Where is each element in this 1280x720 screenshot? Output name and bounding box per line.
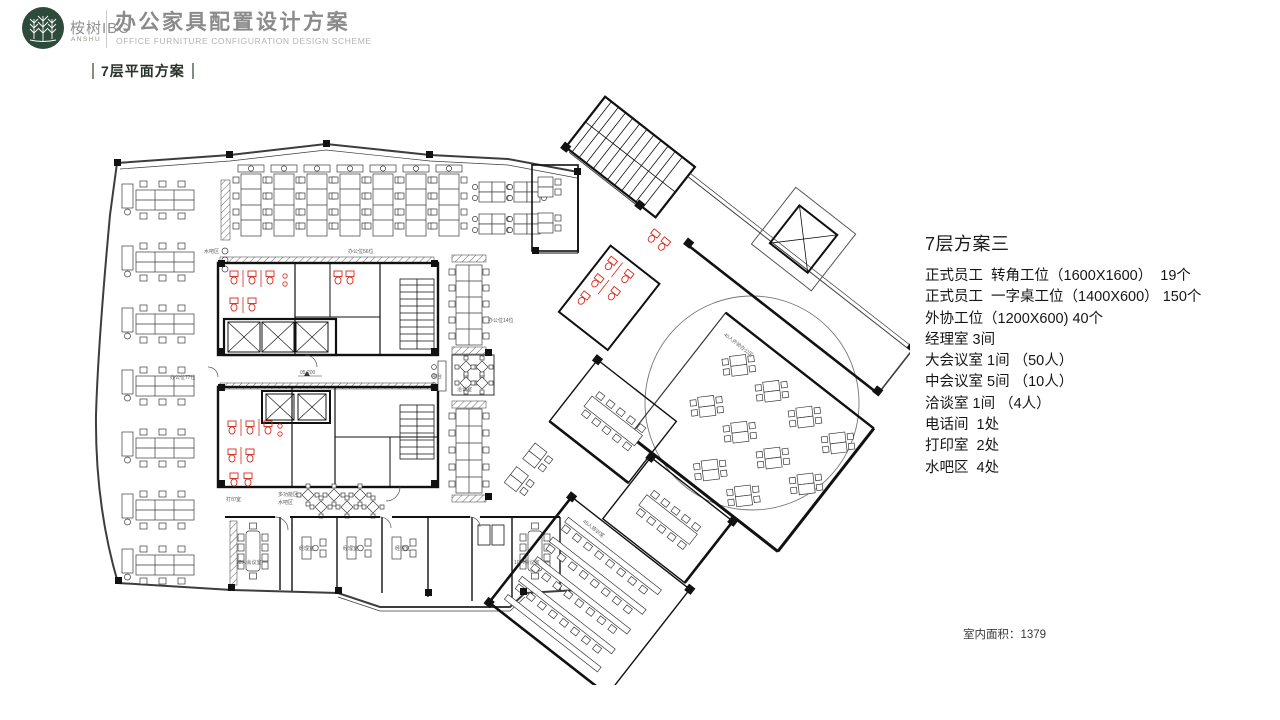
section-label: 7层平面方案 [92,61,194,81]
spec-item: 经理室 3间 [925,330,1255,351]
spec-item: 水吧区 4处 [925,458,1255,479]
plan-label: 水吧区 [204,248,219,255]
plan-label: 05.200 [300,370,316,376]
logo-text-en: ANSHU [71,36,101,43]
top-bench-field [233,165,467,236]
spec-item: 洽谈室 1间 （4人） [925,394,1255,415]
top-quad-clusters [472,182,546,234]
plan-label: 办公位56位 [348,248,374,255]
spec-list: 正式员工 转角工位（1600X1600） 19个正式员工 一字桌工位（1400X… [925,266,1255,479]
plan-label: 10人会议室 [236,559,262,566]
spec-panel: 7层方案三 正式员工 转角工位（1600X1600） 19个正式员工 一字桌工位… [925,230,1255,479]
section-label-text: 7层平面方案 [101,61,185,81]
spec-item: 打印室 2处 [925,436,1255,457]
plan-label: 打印室 [226,496,241,503]
plan-label: 水吧区 [278,499,293,506]
spec-item: 中会议室 5间 （10人） [925,372,1255,393]
plan-label: 10人会议室 [514,559,540,566]
restroom-upper [230,270,354,313]
company-logo [22,7,64,49]
floor-plan-svg: 40人外协办公区45人培训室 水吧区办公位56位办公位77位办公位14位05.2… [80,85,910,685]
plan-label: 40人外协办公区 [722,331,754,358]
page: { "header": { "logo_zh": "桉树IBC", "logo_… [0,0,1280,720]
core-lower [218,387,438,487]
plan-label: 吧台 [432,373,442,380]
spec-title: 7层方案三 [925,230,1255,256]
wing-small-desks [504,443,554,497]
spec-item: 外协工位（1200X600) 40个 [925,309,1255,330]
spec-item: 正式员工 转角工位（1600X1600） 19个 [925,266,1255,287]
floor-plan: 40人外协办公区45人培训室 水吧区办公位56位办公位77位办公位14位05.2… [80,85,910,690]
restroom-lower [228,419,282,486]
plan-label: 经理室 [343,545,358,552]
plan-label: 经理室 [299,545,314,552]
header-divider [106,10,107,48]
page-subtitle-en: OFFICE FURNITURE CONFIGURATION DESIGN SC… [116,36,372,46]
plan-label: 洽谈室 [457,386,472,393]
section-bar-right [192,63,194,79]
water-bar-diamonds [297,484,384,518]
plan-label: 经理室 [395,545,410,552]
page-title: 办公家具配置设计方案 [115,6,350,36]
spec-item: 电话间 1处 [925,415,1255,436]
section-bar-left [92,63,94,79]
eucalyptus-trees-icon [26,11,60,45]
plan-label: 办公位77位 [170,374,196,381]
plan-label: 多功能区 [278,491,298,498]
spec-item: 大会议室 1间 （50人） [925,351,1255,372]
spec-item: 正式员工 一字桌工位（1400X600） 150个 [925,287,1255,308]
area-note: 室内面积：1379 [963,626,1046,642]
left-desk-field [122,181,194,584]
plan-label: 办公位14位 [488,317,514,324]
private-office [532,165,578,251]
